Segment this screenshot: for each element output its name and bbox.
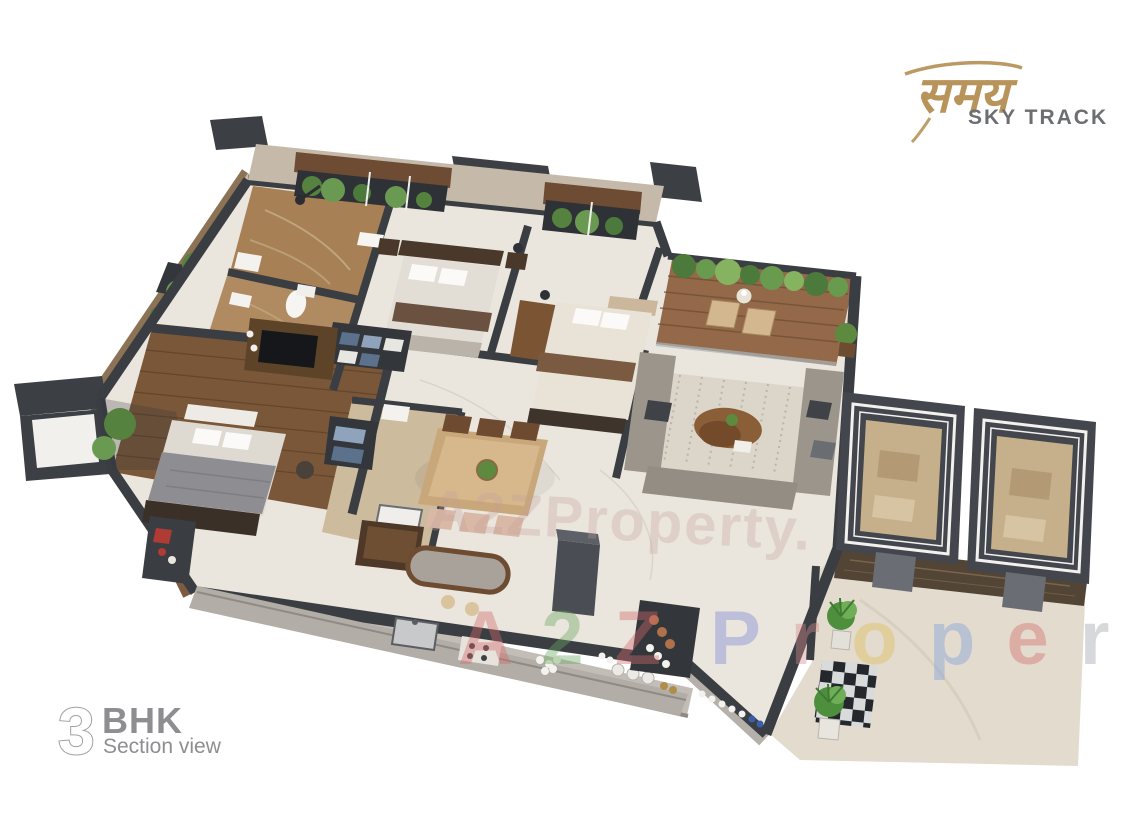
dining-chair [442,414,472,434]
pillow [192,428,222,446]
window-group-bedroom3 [542,182,642,240]
sofa-pillow [644,400,672,422]
plant-pot [838,342,856,358]
watermark-letter: p [929,596,980,681]
logo-tagline: SKY TRACK [968,106,1108,129]
dining-chair [510,421,540,441]
watermark-bottom: A 2 Z P r o p e r t y [458,596,1138,681]
flowers [741,290,747,296]
pillow [408,264,438,282]
watermark-letter: r [1080,596,1115,681]
plant-icon [104,408,136,440]
watermark-letter: Z [615,596,666,681]
caption-number: 3 [58,694,95,768]
breakfast-bar [408,548,508,592]
floor-plan-render: A2ZProperty. A 2 Z P r o p e r t y समय S… [0,0,1138,818]
nightstand [377,238,400,256]
table-plant [726,414,738,426]
tv-screen [258,330,318,368]
watermark-letter: o [851,596,902,681]
lounge-chair [742,308,776,336]
plant-icon [552,208,572,228]
nightstand [505,252,528,270]
decor-item [247,331,254,338]
watermark-letter: e [1006,596,1053,681]
folded-clothes [337,350,358,364]
pillow [572,308,602,326]
pillow [600,312,630,330]
watermark-letter: P [710,596,764,681]
folded-clothes [361,335,382,349]
elevator-sill [872,552,916,592]
plant-icon [416,192,432,208]
plant-icon [575,210,599,234]
pillow [222,432,252,450]
dining-chair [476,418,506,438]
serving-tray [733,440,752,453]
faucet [412,619,418,625]
folded-clothes [359,353,380,367]
plant-icon [321,178,345,202]
caption: 3 BHK Section view [58,694,222,768]
caption-subtitle: Section view [103,735,222,758]
pillow [438,268,468,286]
potted-plant [835,323,857,345]
window-bay-left [14,376,110,481]
pantry-red-items [158,548,166,556]
brand-logo: समय SKY TRACK [905,63,1108,142]
floor-lamp [540,290,550,300]
watermark-letter: A [458,596,515,681]
watermark-letter: 2 [541,596,588,681]
lounge-chair [706,300,740,328]
pouf [296,461,314,479]
sofa-pillow [806,400,832,420]
pantry-unit [142,516,196,584]
sofa-pillow [810,440,836,460]
folded-clothes [383,338,404,352]
plant-icon [92,436,116,460]
decor-item [251,345,258,352]
plant-icon [385,186,407,208]
watermark-letter: r [791,596,826,681]
plant-icon [605,217,623,235]
folded-clothes [339,332,360,346]
pantry-red-items [153,528,172,544]
towels [381,404,410,422]
table-lamp [513,243,523,253]
bar-stool [441,595,455,609]
